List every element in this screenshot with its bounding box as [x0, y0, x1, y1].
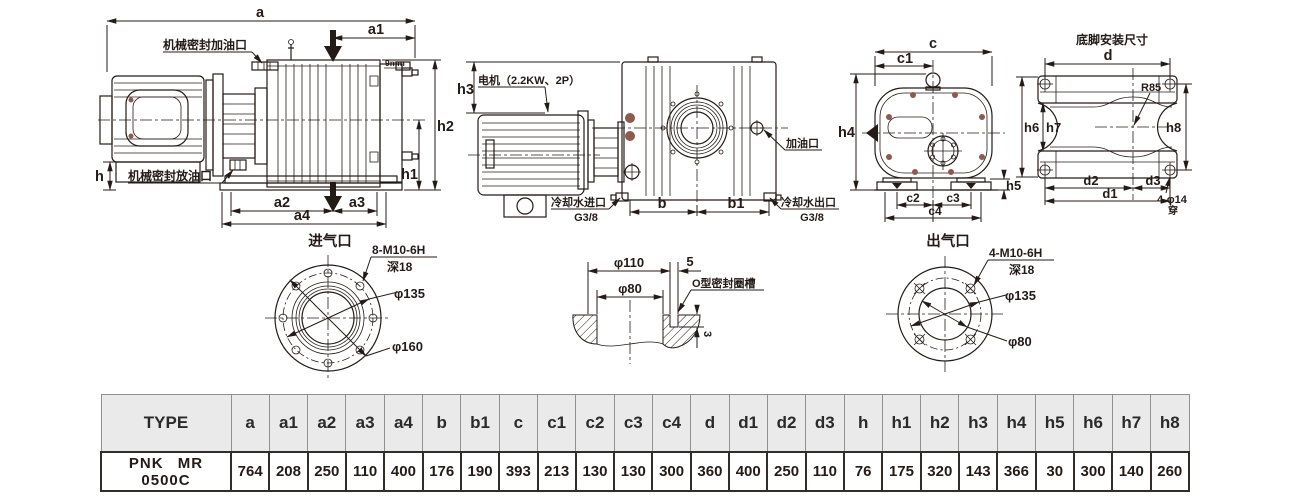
- table-value-cell: 250: [308, 452, 346, 491]
- table-header-cell: h6: [1074, 395, 1112, 453]
- inlet-bolt-callout: 8-M10-6H: [372, 243, 425, 257]
- inlet-outer-dia-label: φ160: [392, 339, 423, 354]
- front-view: h3 电机（2.2KW、2P） 加油口 b b1 冷却水进口 G3/8 冷却水出…: [457, 57, 839, 224]
- table-value-row: PNK MR 0500C 764 208 250 110 400 176 190…: [101, 452, 1189, 491]
- groove-width-label: 5: [686, 254, 693, 269]
- side-view: a a1 h2 h1 h a2 a3 a4 机械密封加油口 机械密封放油口: [95, 5, 454, 228]
- dim-label-c3: c3: [946, 191, 960, 205]
- groove-outer-dia-label: φ110: [614, 255, 644, 270]
- table-value-cell: 130: [576, 452, 614, 491]
- dim-label-c: c: [929, 36, 937, 52]
- inlet-flow-arrow-top: [324, 30, 342, 62]
- table-value-cell: 764: [231, 452, 269, 491]
- table-header-cell: a1: [269, 395, 307, 453]
- table-value-cell: 76: [844, 452, 882, 491]
- foot-mount-view: 底脚安装尺寸 d R85: [1016, 32, 1192, 217]
- groove-bore-label: φ80: [618, 281, 642, 296]
- dim-label-a4: a4: [294, 208, 310, 224]
- table-value-cell: 110: [806, 452, 844, 491]
- table-header-cell: b: [423, 395, 461, 453]
- table-header-cell: b1: [461, 395, 499, 453]
- table-header-cell: d1: [729, 395, 767, 453]
- table-value-cell: 30: [1036, 452, 1074, 491]
- dim-label-h2: h2: [437, 119, 454, 135]
- dim-label-d1: d1: [1102, 186, 1117, 201]
- dim-label-b: b: [658, 196, 667, 212]
- table-value-cell: 190: [461, 452, 499, 491]
- foot-view-title: 底脚安装尺寸: [1076, 32, 1148, 47]
- oring-groove-detail: φ110 5 φ80 O型密封圈槽 3: [573, 254, 764, 364]
- table-header-cell: c4: [652, 395, 690, 453]
- table-header-cell: h1: [882, 395, 920, 453]
- table-type-value: PNK MR 0500C: [101, 452, 231, 491]
- outlet-title: 出气口: [926, 232, 970, 250]
- inlet-bolt-circle-label: φ135: [394, 286, 425, 301]
- dim-label-d2: d2: [1083, 173, 1098, 188]
- groove-depth-label: 3: [701, 331, 713, 337]
- callout-cooling-outlet: 冷却水出口: [781, 195, 836, 209]
- pump-dimension-drawing-page: a a1 h2 h1 h a2 a3 a4 机械密封加油口 机械密封放油口: [0, 0, 1300, 500]
- table-header-cell: d3: [806, 395, 844, 453]
- table-value-cell: 400: [384, 452, 422, 491]
- holes-callout: 4-φ14: [1157, 194, 1188, 206]
- dim-label-a: a: [256, 5, 265, 21]
- note-label: 9mm: [385, 58, 405, 68]
- outlet-bolt-depth: 深18: [1009, 262, 1035, 277]
- table-value-cell: 208: [269, 452, 307, 491]
- table-header-cell: a3: [346, 395, 384, 453]
- outlet-bolt-callout: 4-M10-6H: [989, 246, 1042, 260]
- dim-label-h: h: [95, 169, 104, 185]
- callout-cooling-outlet-thread: G3/8: [800, 212, 824, 224]
- callout-seal-drain: 机械密封放油口: [128, 168, 212, 183]
- table-header-cell: h4: [997, 395, 1035, 453]
- dimension-table: TYPE a a1 a2 a3 a4 b b1 c c1 c2 c3 c4 d …: [100, 394, 1190, 492]
- table-value-cell: 140: [1112, 452, 1150, 491]
- inlet-flange-detail: 进气口 φ135 φ160 8-M10-6H 深18: [265, 232, 437, 381]
- table-header-cell: d: [691, 395, 729, 453]
- dim-label-h6: h6: [1024, 120, 1039, 135]
- radius-label: R85: [1141, 82, 1161, 94]
- table-value-cell: 320: [921, 452, 959, 491]
- groove-callout: O型密封圈槽: [692, 276, 756, 290]
- table-value-cell: 366: [997, 452, 1035, 491]
- table-header-cell: c2: [576, 395, 614, 453]
- table-header-cell: c: [499, 395, 537, 453]
- end-view: c c1 h4 h5 c2 c3 c4: [838, 36, 1021, 222]
- dim-label-h8: h8: [1166, 120, 1181, 135]
- dim-label-c1: c1: [897, 51, 913, 67]
- table-header-cell: d2: [767, 395, 805, 453]
- dim-label-d: d: [1104, 48, 1113, 64]
- table-value-cell: 176: [423, 452, 461, 491]
- inlet-bolt-depth: 深18: [387, 259, 413, 274]
- dim-label-h4: h4: [838, 125, 855, 141]
- dim-label-c4: c4: [928, 204, 942, 218]
- table-value-cell: 300: [1074, 452, 1112, 491]
- outlet-flange-detail: 出气口 φ135 φ80 4-M10-6H 深18: [886, 232, 1054, 372]
- dim-label-a2: a2: [274, 195, 290, 211]
- dim-label-h5: h5: [1006, 178, 1021, 193]
- table-value-cell: 213: [538, 452, 576, 491]
- table-value-cell: 260: [1151, 452, 1190, 491]
- dim-label-a3: a3: [349, 195, 365, 211]
- table-header-cell: h3: [959, 395, 997, 453]
- table-header-type: TYPE: [101, 395, 231, 453]
- table-header-cell: h8: [1151, 395, 1190, 453]
- table-value-cell: 250: [767, 452, 805, 491]
- technical-drawing-canvas: a a1 h2 h1 h a2 a3 a4 机械密封加油口 机械密封放油口: [0, 0, 1300, 392]
- table-header-cell: c1: [538, 395, 576, 453]
- table-header-row: TYPE a a1 a2 a3 a4 b b1 c c1 c2 c3 c4 d …: [101, 395, 1189, 453]
- table-header-cell: h7: [1112, 395, 1150, 453]
- inlet-title: 进气口: [308, 232, 352, 250]
- dim-label-c2: c2: [906, 191, 920, 205]
- dim-label-b1: b1: [728, 196, 745, 212]
- table-header-cell: a4: [384, 395, 422, 453]
- table-header-cell: h2: [921, 395, 959, 453]
- callout-cooling-inlet: 冷却水进口: [551, 195, 606, 209]
- through-label: 穿: [1168, 204, 1178, 217]
- table-value-cell: 130: [614, 452, 652, 491]
- table-header-cell: a2: [308, 395, 346, 453]
- table-value-cell: 175: [882, 452, 920, 491]
- table-value-cell: 360: [691, 452, 729, 491]
- table-value-cell: 300: [652, 452, 690, 491]
- table-value-cell: 110: [346, 452, 384, 491]
- table-header-cell: h: [844, 395, 882, 453]
- dim-label-a1: a1: [368, 22, 384, 38]
- dim-label-h3: h3: [457, 82, 474, 98]
- table-value-cell: 143: [959, 452, 997, 491]
- table-value-cell: 393: [499, 452, 537, 491]
- outlet-bolt-circle-label: φ135: [1005, 288, 1036, 303]
- callout-oil-port: 加油口: [785, 136, 819, 150]
- callout-motor: 电机（2.2KW、2P）: [478, 73, 580, 87]
- outlet-bore-label: φ80: [1008, 334, 1032, 349]
- table-header-cell: h5: [1036, 395, 1074, 453]
- table-header-cell: c3: [614, 395, 652, 453]
- dim-label-h1: h1: [401, 167, 418, 183]
- table-header-cell: a: [231, 395, 269, 453]
- callout-cooling-inlet-thread: G3/8: [574, 212, 598, 224]
- dim-label-d3: d3: [1145, 173, 1160, 188]
- table-value-cell: 400: [729, 452, 767, 491]
- dim-label-h7: h7: [1046, 120, 1061, 135]
- callout-seal-fill: 机械密封加油口: [163, 37, 247, 52]
